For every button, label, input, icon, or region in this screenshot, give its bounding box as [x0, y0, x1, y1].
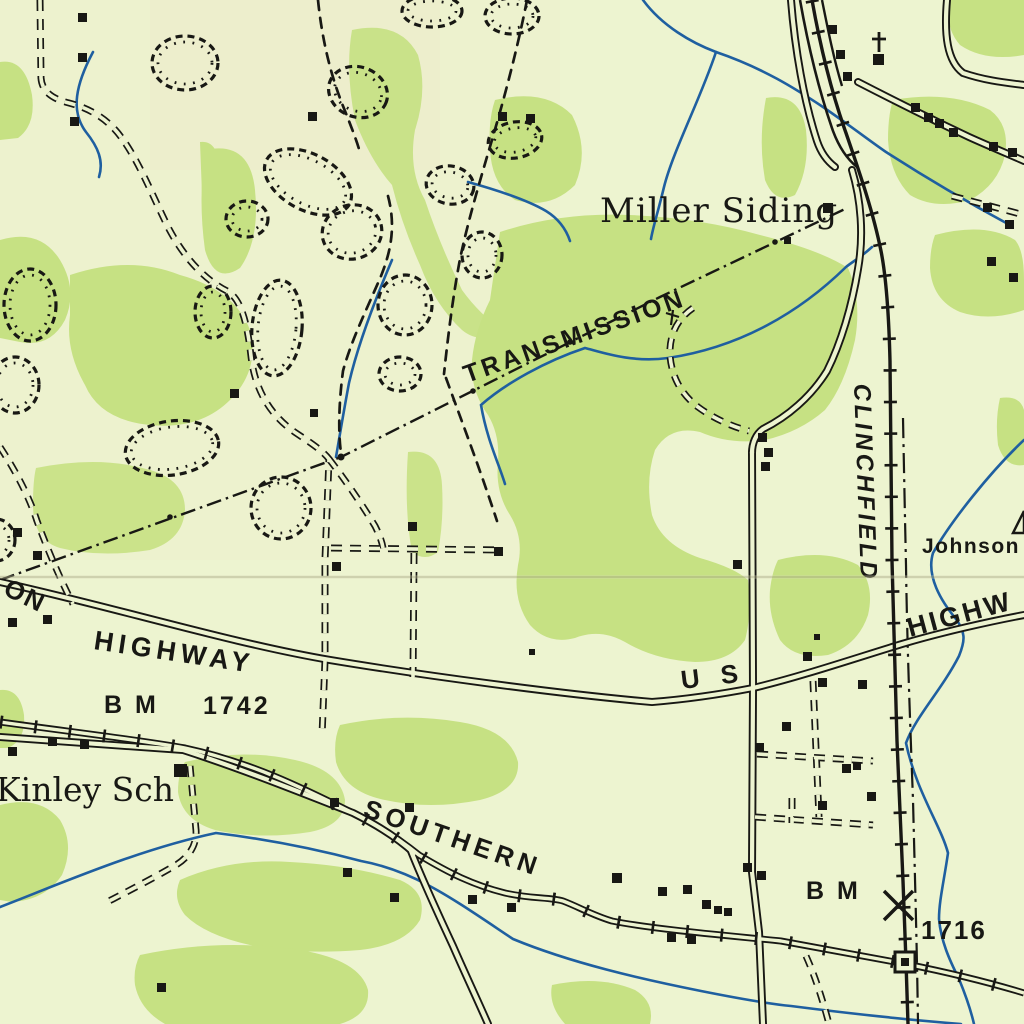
building-square-icon — [853, 762, 861, 770]
building-square-icon — [308, 112, 317, 121]
building-square-icon — [8, 618, 17, 627]
label-benchmark-1716-value: 1716 — [921, 915, 987, 945]
building-square-icon — [1009, 273, 1018, 282]
label-benchmark-1742-value: 1742 — [203, 692, 271, 720]
building-square-icon — [784, 237, 791, 244]
building-square-icon — [157, 983, 166, 992]
building-square-icon — [949, 128, 958, 137]
building-square-icon — [764, 448, 773, 457]
building-square-icon — [310, 409, 318, 417]
building-square-icon — [989, 142, 998, 151]
building-square-icon — [714, 906, 722, 914]
building-square-icon — [612, 873, 622, 883]
building-square-icon — [733, 560, 742, 569]
building-square-icon — [683, 885, 692, 894]
building-square-icon — [80, 740, 89, 749]
building-square-icon — [658, 887, 667, 896]
building-square-icon — [468, 895, 477, 904]
building-square-icon — [803, 652, 812, 661]
building-square-icon — [8, 747, 17, 756]
topo-map: Miller Siding TRANSMISSION CLINCHFIELD J… — [0, 0, 1024, 1024]
building-square-icon — [343, 868, 352, 877]
building-square-icon — [924, 113, 933, 122]
label-benchmark-1716-prefix: B M — [806, 877, 861, 905]
building-square-icon — [507, 903, 516, 912]
building-square-icon — [1008, 148, 1017, 157]
building-square-icon — [814, 634, 820, 640]
building-square-icon — [78, 13, 87, 22]
building-square-icon — [498, 112, 507, 121]
building-square-icon — [33, 551, 42, 560]
building-square-icon — [687, 935, 696, 944]
building-square-icon — [78, 53, 87, 62]
pole-dot-icon — [470, 388, 476, 394]
topo-map-canvas: Miller Siding TRANSMISSION CLINCHFIELD J… — [0, 0, 1024, 1024]
building-square-icon — [761, 462, 770, 471]
building-square-icon — [987, 257, 996, 266]
building-square-icon — [230, 389, 239, 398]
building-square-icon — [43, 615, 52, 624]
building-square-icon — [755, 743, 764, 752]
pole-dot-icon — [338, 454, 345, 461]
building-square-icon — [1005, 220, 1014, 229]
pole-dot-icon — [167, 514, 173, 520]
building-square-icon — [526, 114, 535, 123]
pole-dot-icon — [772, 239, 778, 245]
building-square-icon — [782, 722, 791, 731]
church-building-icon — [873, 54, 884, 65]
station-inner-icon — [901, 958, 909, 966]
building-square-icon — [70, 117, 79, 126]
building-square-icon — [332, 562, 341, 571]
label-miller-siding: Miller Siding — [600, 191, 838, 231]
building-square-icon — [48, 737, 57, 746]
building-square-icon — [390, 893, 399, 902]
building-square-icon — [13, 528, 22, 537]
building-square-icon — [757, 871, 766, 880]
building-square-icon — [758, 433, 767, 442]
building-square-icon — [843, 72, 852, 81]
building-square-icon — [818, 801, 827, 810]
label-kinley-school: Kinley Sch — [0, 770, 174, 809]
label-benchmark-1742-prefix: B M — [104, 691, 159, 719]
building-square-icon — [667, 933, 676, 942]
building-square-icon — [743, 863, 752, 872]
building-square-icon — [828, 25, 837, 34]
building-square-icon — [330, 798, 339, 807]
building-square-icon — [724, 908, 732, 916]
building-square-icon — [983, 203, 992, 212]
building-square-icon — [935, 119, 944, 128]
building-square-icon — [911, 103, 920, 112]
building-square-icon — [818, 678, 827, 687]
building-square-icon — [867, 792, 876, 801]
building-square-icon — [408, 522, 417, 531]
label-johnson: Johnson — [922, 535, 1020, 558]
building-square-icon — [494, 547, 503, 556]
building-square-icon — [529, 649, 535, 655]
building-square-icon — [858, 680, 867, 689]
building-square-icon — [702, 900, 711, 909]
school-building-icon — [174, 764, 187, 777]
building-square-icon — [836, 50, 845, 59]
building-square-icon — [842, 764, 851, 773]
